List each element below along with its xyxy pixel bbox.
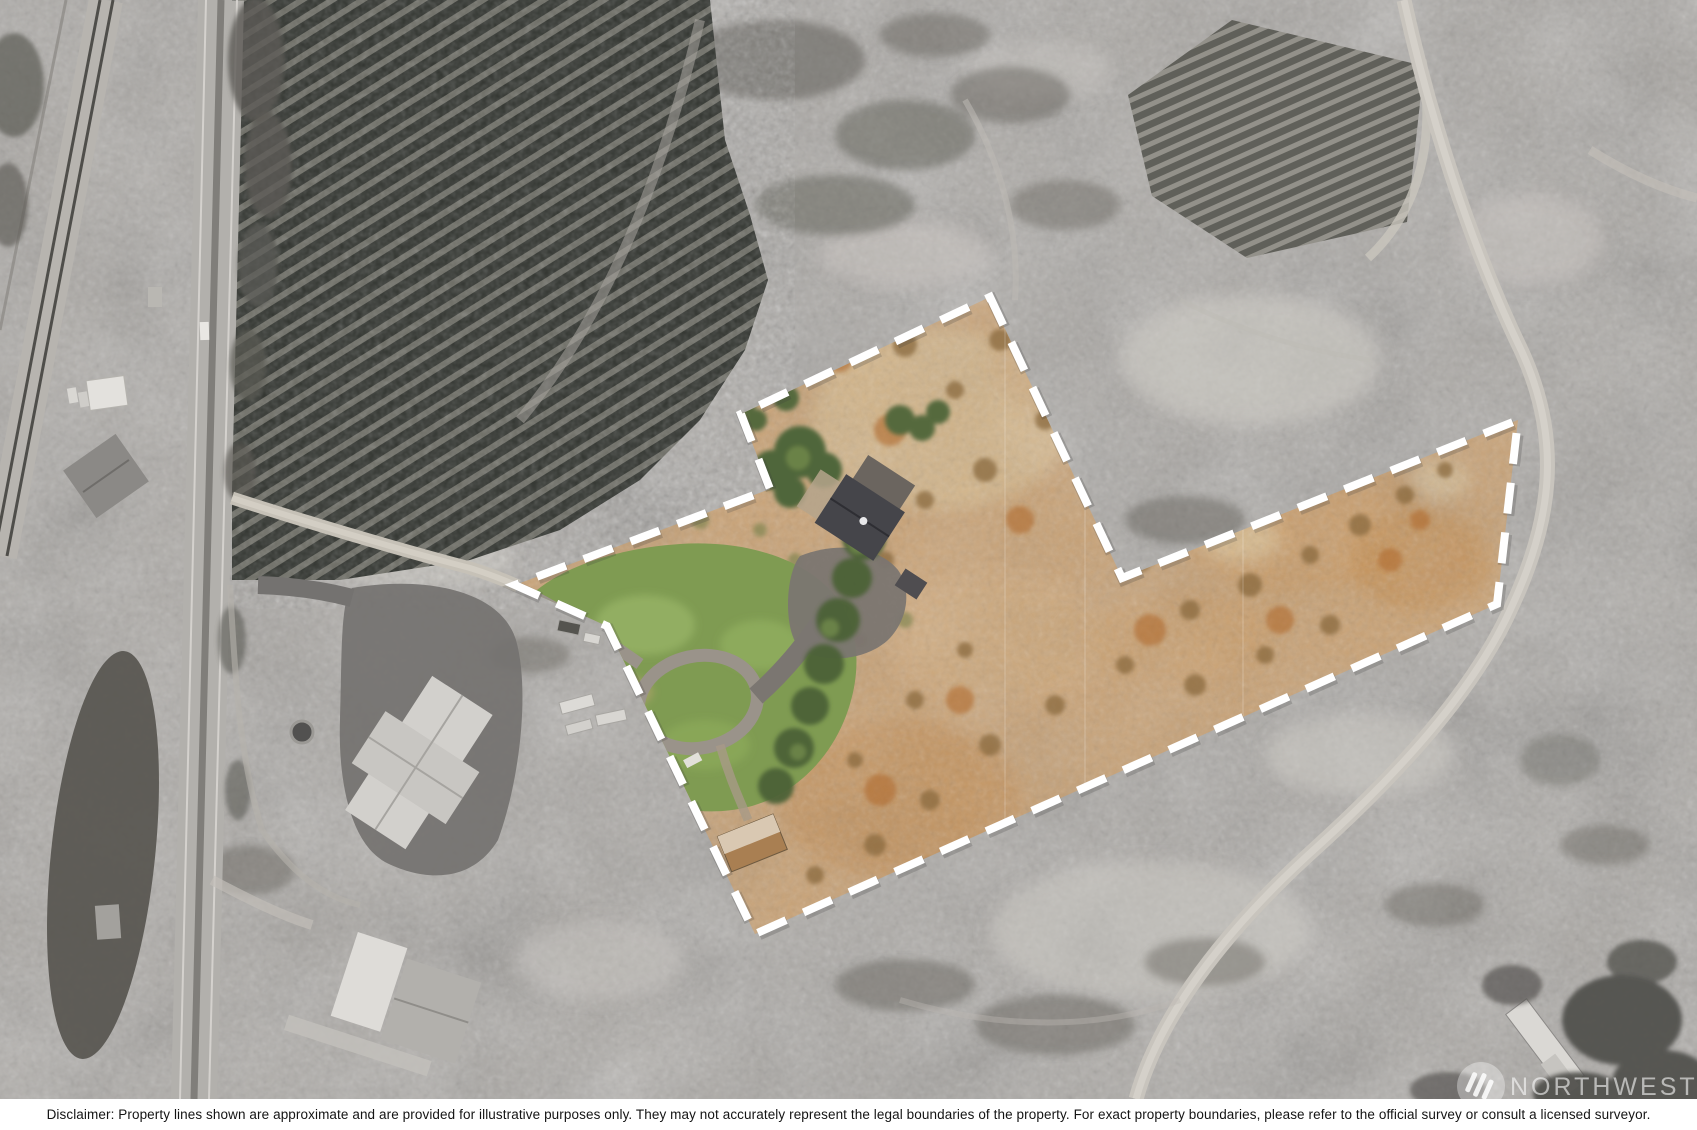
- car-on-highway: [200, 322, 210, 340]
- watermark-text: NORTHWEST: [1510, 1073, 1697, 1099]
- round-pool: [291, 721, 313, 743]
- disclaimer-bar: Disclaimer: Property lines shown are app…: [0, 1099, 1697, 1130]
- field-shed: [95, 904, 121, 940]
- disclaimer-text: Disclaimer: Property lines shown are app…: [47, 1107, 1651, 1122]
- aerial-photo-canvas: NORTHWEST: [0, 0, 1697, 1099]
- white-barn-roof: [86, 376, 128, 411]
- listing-aerial-photo: NORTHWEST Disclaimer: Property lines sho…: [0, 0, 1697, 1130]
